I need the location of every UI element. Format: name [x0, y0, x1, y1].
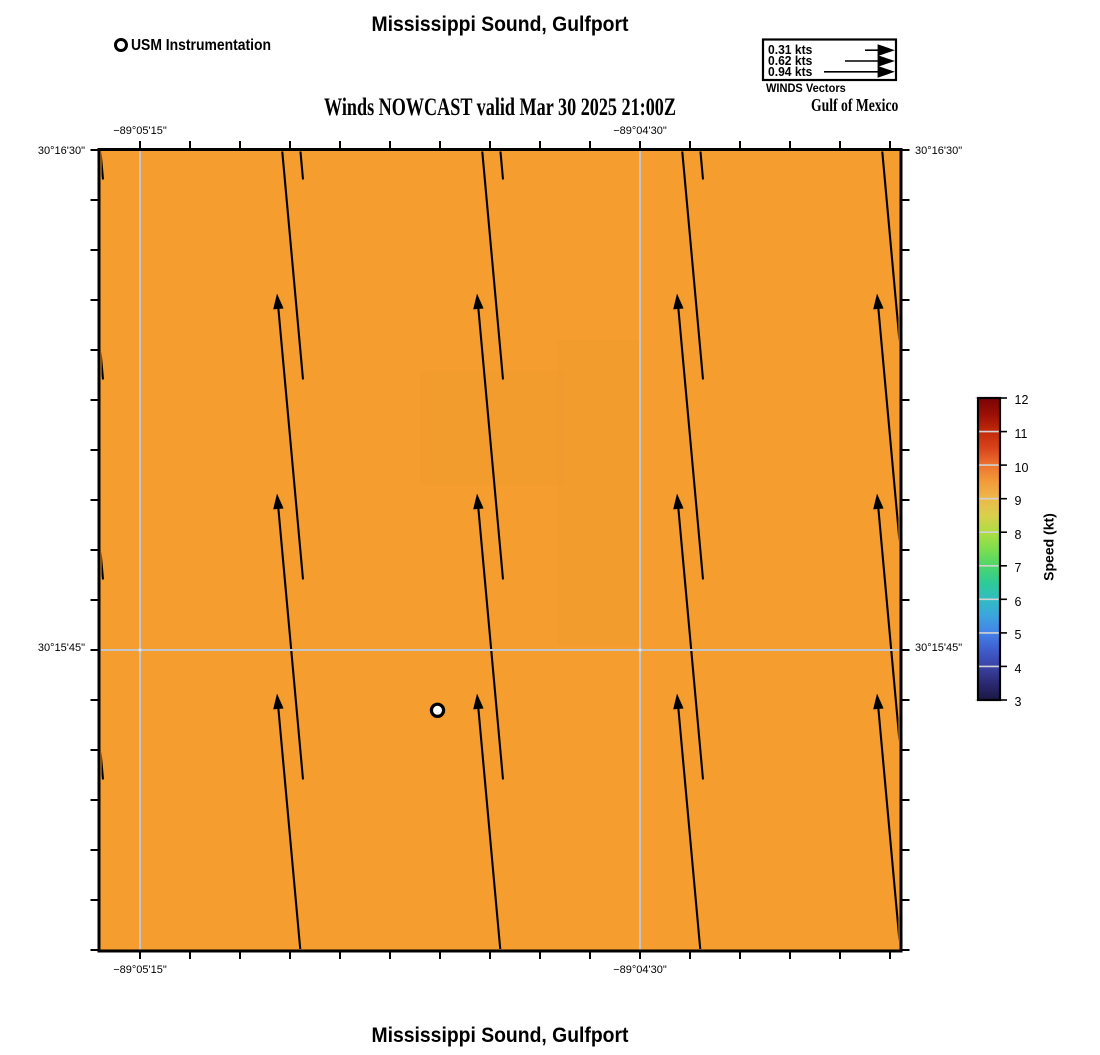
svg-text:Speed (kt): Speed (kt): [1041, 513, 1057, 581]
